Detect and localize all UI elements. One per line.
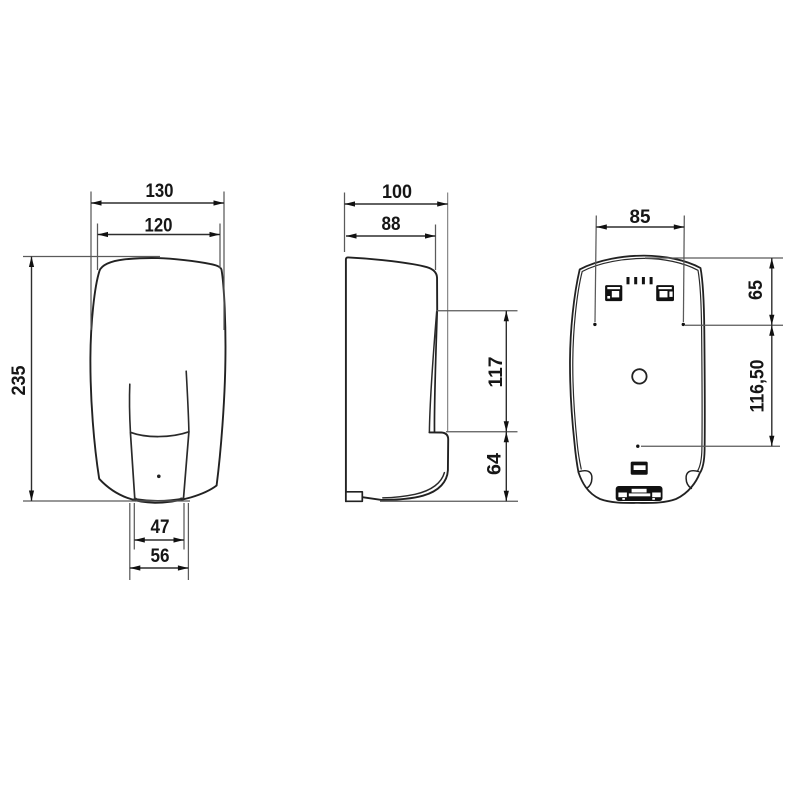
svg-text:117: 117 bbox=[486, 357, 507, 388]
svg-text:85: 85 bbox=[630, 207, 651, 228]
svg-text:56: 56 bbox=[151, 546, 170, 567]
svg-text:130: 130 bbox=[146, 181, 174, 202]
svg-text:120: 120 bbox=[145, 216, 173, 237]
svg-text:235: 235 bbox=[9, 365, 30, 395]
svg-text:47: 47 bbox=[151, 517, 170, 538]
svg-text:116,50: 116,50 bbox=[748, 360, 769, 413]
svg-text:65: 65 bbox=[746, 280, 767, 300]
svg-text:88: 88 bbox=[382, 214, 401, 235]
svg-text:64: 64 bbox=[485, 453, 506, 475]
svg-text:100: 100 bbox=[382, 182, 412, 203]
